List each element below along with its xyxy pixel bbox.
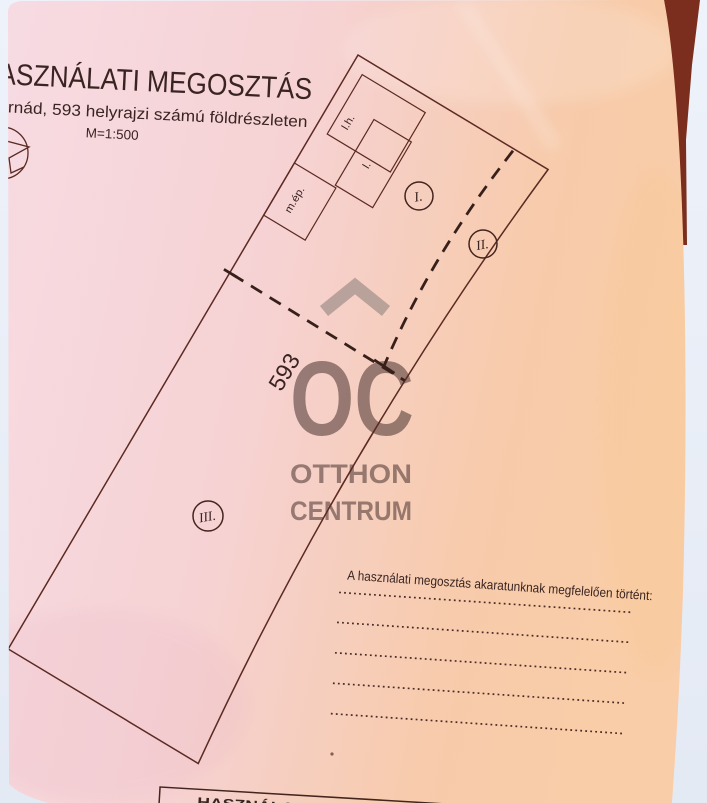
watermark-monogram: OC: [290, 340, 414, 458]
region-2-label: II.: [474, 236, 490, 253]
watermark-name-1: OTTHON: [290, 459, 412, 489]
photographed-document: OC OTTHON CENTRUM HASZNÁLATI MEGOSZTÁS H…: [0, 0, 707, 803]
region-3-label: III.: [197, 508, 217, 526]
ink-speck: [330, 752, 333, 755]
watermark-name-2: CENTRUM: [290, 496, 412, 526]
paper-highlight-top: [340, 0, 680, 105]
scale-label: M=1:500: [85, 125, 139, 143]
